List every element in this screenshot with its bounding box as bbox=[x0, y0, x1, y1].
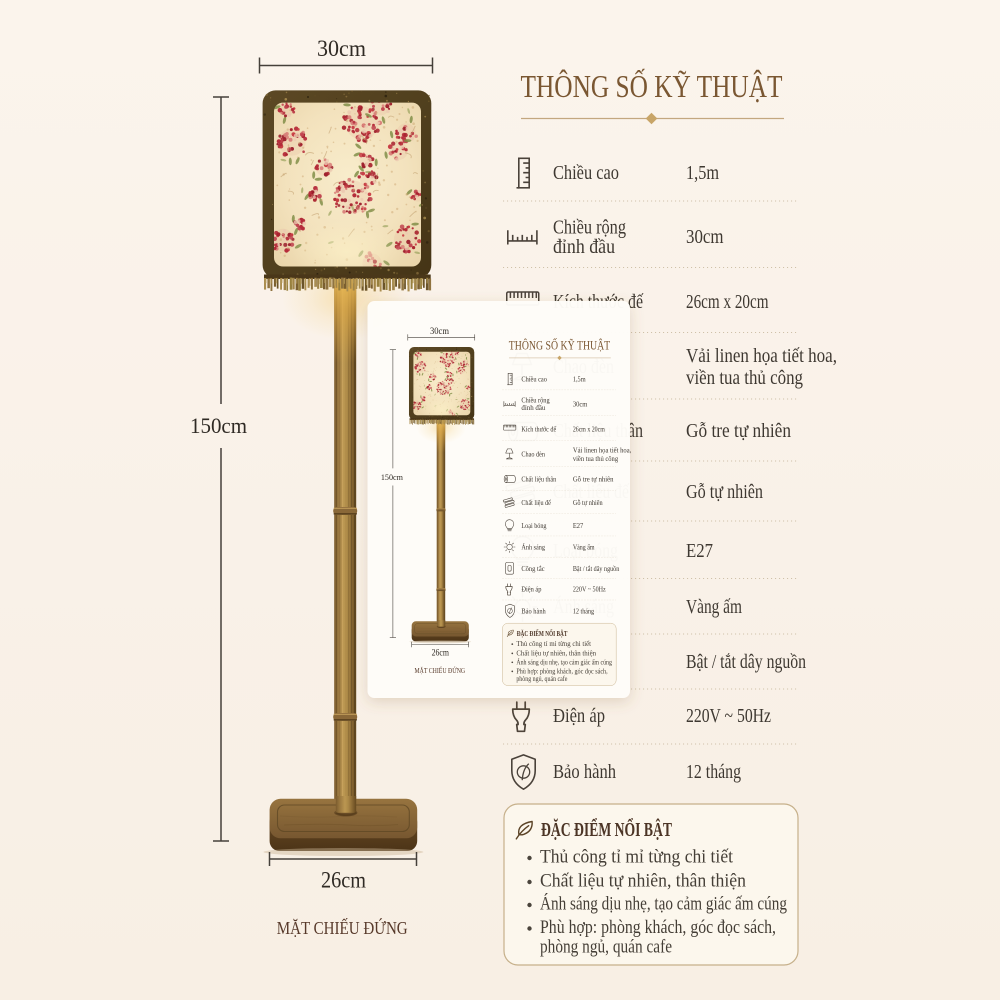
svg-text:150cm: 150cm bbox=[190, 413, 247, 438]
svg-text:Gỗ tự nhiên: Gỗ tự nhiên bbox=[686, 481, 763, 503]
svg-text:12 tháng: 12 tháng bbox=[686, 761, 741, 783]
svg-text:Thủ công tỉ mỉ từng chi tiết: Thủ công tỉ mỉ từng chi tiết bbox=[540, 847, 734, 868]
svg-text:ĐẶC ĐIỂM NỔI BẬT: ĐẶC ĐIỂM NỔI BẬT bbox=[541, 817, 672, 841]
svg-text:Chất liệu tự nhiên, thân thiện: Chất liệu tự nhiên, thân thiện bbox=[540, 871, 746, 892]
svg-text:viền tua thủ công: viền tua thủ công bbox=[686, 367, 803, 389]
svg-text:26cm x 20cm: 26cm x 20cm bbox=[686, 291, 769, 313]
svg-text:Phù hợp: phòng khách, góc đọc: Phù hợp: phòng khách, góc đọc sách, bbox=[540, 917, 776, 938]
svg-text:đỉnh đầu: đỉnh đầu bbox=[553, 236, 615, 258]
svg-text:Vàng ấm: Vàng ấm bbox=[686, 596, 742, 618]
svg-text:THÔNG SỐ KỸ THUẬT: THÔNG SỐ KỸ THUẬT bbox=[521, 68, 783, 104]
svg-text:30cm: 30cm bbox=[317, 36, 366, 61]
svg-text:Ánh sáng dịu nhẹ, tạo cảm giác: Ánh sáng dịu nhẹ, tạo cảm giác ấm cúng bbox=[540, 893, 787, 915]
svg-text:Bảo hành: Bảo hành bbox=[553, 761, 616, 783]
svg-text:Bật / tắt dây nguồn: Bật / tắt dây nguồn bbox=[686, 651, 806, 673]
svg-text:Gỗ tre tự nhiên: Gỗ tre tự nhiên bbox=[686, 420, 791, 442]
svg-text:1,5m: 1,5m bbox=[686, 162, 719, 184]
svg-text:26cm: 26cm bbox=[321, 868, 366, 893]
svg-text:E27: E27 bbox=[686, 540, 713, 562]
svg-text:MẶT CHIẾU ĐỨNG: MẶT CHIẾU ĐỨNG bbox=[277, 917, 408, 938]
svg-text:Vải linen họa tiết hoa,: Vải linen họa tiết hoa, bbox=[686, 345, 837, 367]
svg-text:30cm: 30cm bbox=[686, 226, 724, 248]
svg-text:Điện áp: Điện áp bbox=[553, 705, 605, 727]
svg-text:220V ~ 50Hz: 220V ~ 50Hz bbox=[686, 705, 771, 727]
svg-text:phòng ngủ, quán cafe: phòng ngủ, quán cafe bbox=[540, 937, 672, 958]
svg-text:Chiều cao: Chiều cao bbox=[553, 162, 619, 184]
